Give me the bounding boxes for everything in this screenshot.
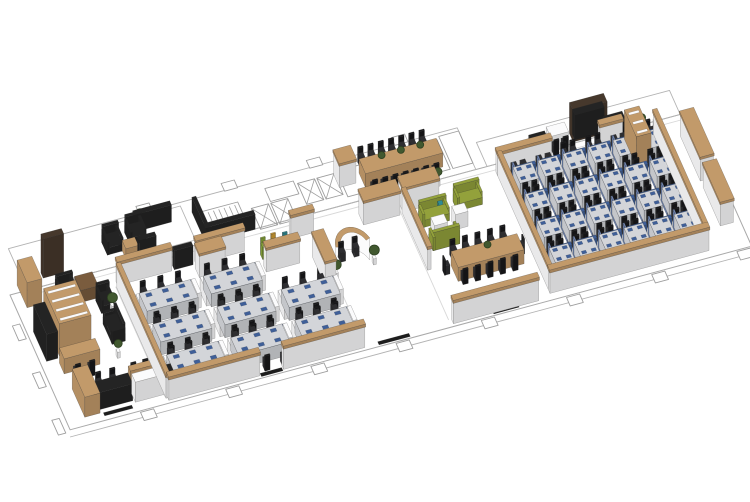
planter — [118, 352, 121, 359]
furniture-block — [43, 234, 64, 279]
task-chair — [445, 260, 446, 275]
task-chair — [476, 265, 481, 281]
task-chair — [554, 140, 559, 156]
sofa — [433, 237, 435, 251]
office-floorplan-3d-view — [0, 0, 750, 502]
plant — [369, 245, 379, 255]
task-chair — [463, 268, 468, 284]
office-floorplan-render — [0, 0, 750, 502]
partition-wall — [428, 248, 431, 270]
structural-column — [52, 418, 66, 435]
structural-column — [32, 372, 46, 389]
plan-linework — [439, 131, 473, 169]
task-chair — [354, 247, 359, 257]
plant — [107, 293, 117, 303]
task-chair — [501, 258, 506, 274]
plant — [114, 340, 122, 348]
planter — [374, 258, 377, 265]
task-chair — [265, 355, 270, 371]
elevator-shaft — [307, 179, 315, 205]
furniture-block — [47, 331, 58, 361]
structural-column — [221, 180, 238, 191]
plan-linework — [265, 181, 299, 202]
furniture-block — [41, 234, 43, 278]
structural-column — [306, 157, 323, 168]
table-plant — [397, 146, 404, 153]
sofa — [107, 242, 109, 256]
task-chair — [341, 252, 346, 262]
task-chair — [488, 262, 493, 278]
table-plant — [484, 241, 491, 248]
task-chair — [513, 255, 518, 271]
elevator-shaft — [326, 174, 334, 200]
table-plant — [378, 152, 385, 159]
table-plant — [417, 141, 424, 148]
